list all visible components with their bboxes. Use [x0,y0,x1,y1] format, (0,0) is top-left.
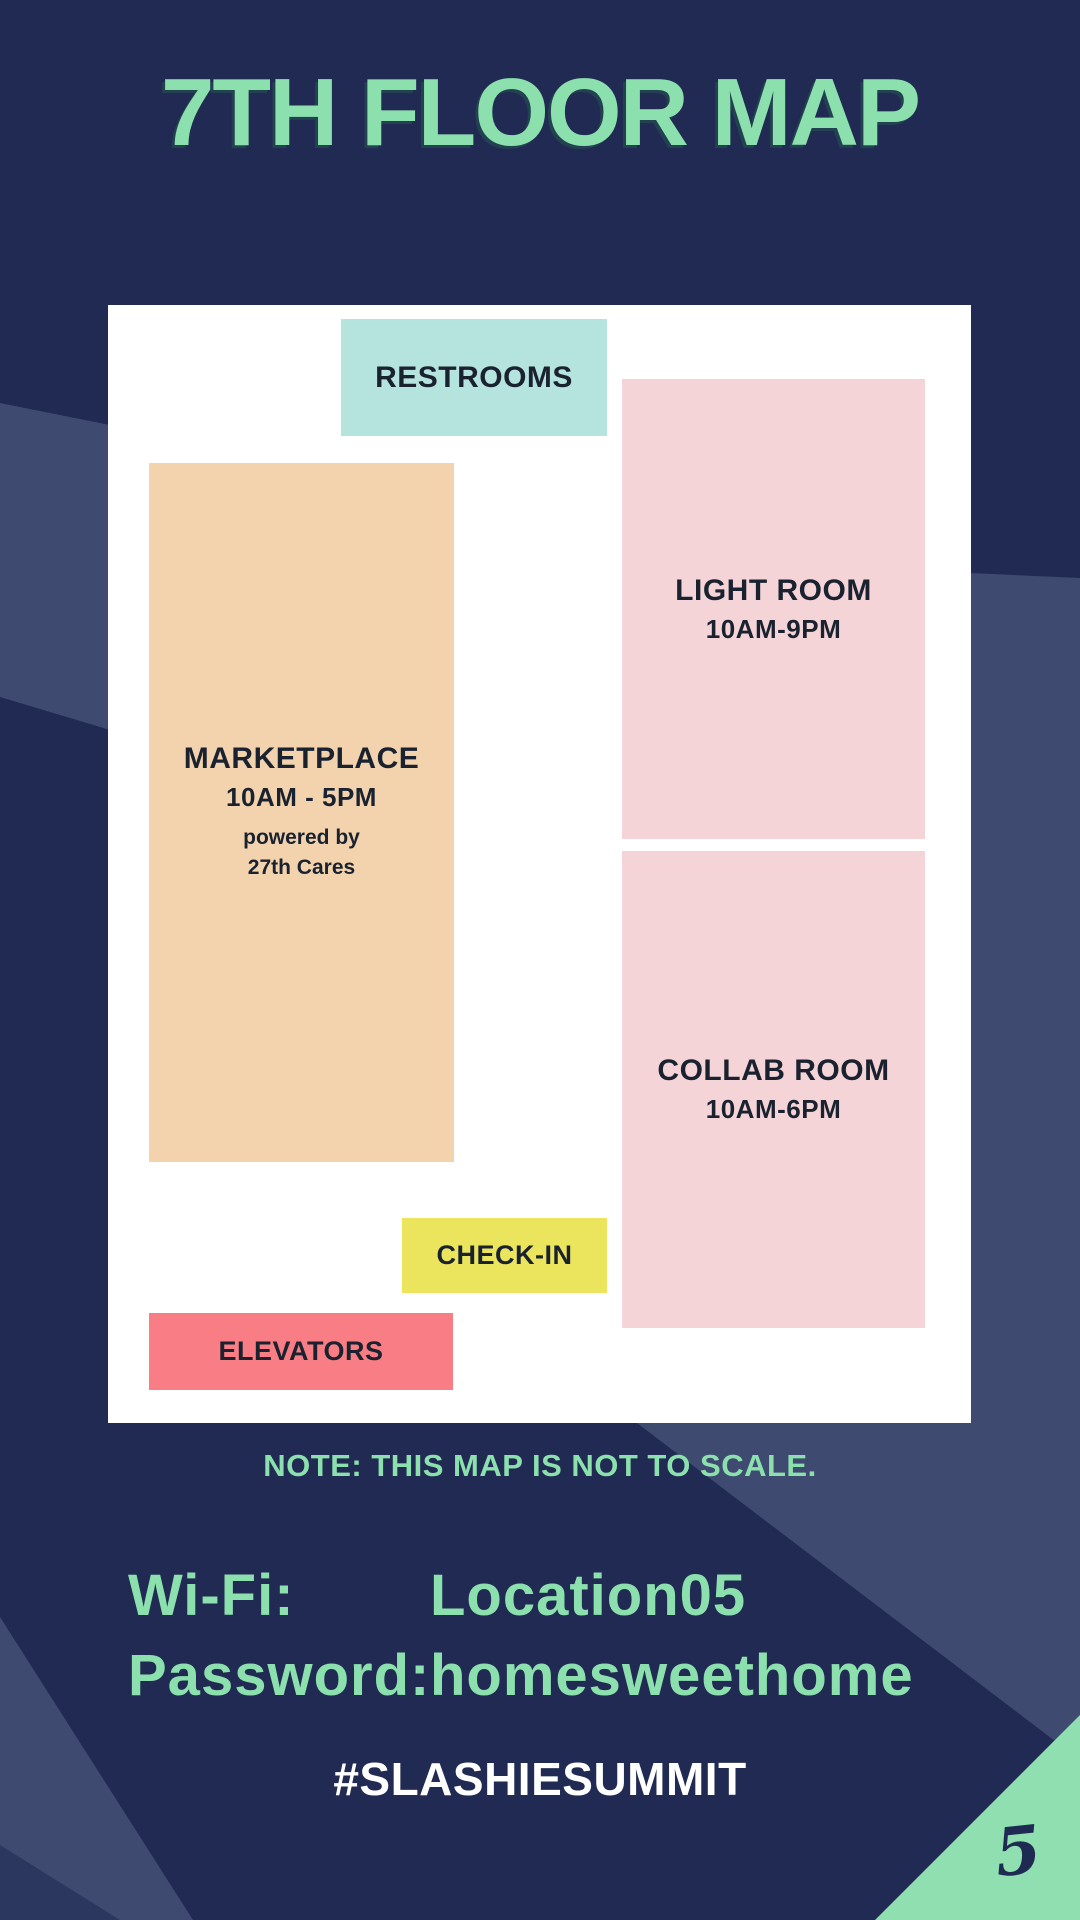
page-title: 7TH FLOOR MAP [0,58,1080,168]
room-marketplace-label: MARKETPLACE [184,742,420,776]
event-hashtag: #SLASHIESUMMIT [0,1752,1080,1806]
room-marketplace-sponsor-line1: powered by [243,823,360,853]
floor-map: RESTROOMS LIGHT ROOM 10AM-9PM MARKETPLAC… [108,305,971,1423]
room-elevators-label: ELEVATORS [218,1336,383,1367]
room-elevators: ELEVATORS [149,1313,453,1390]
room-light-room-label: LIGHT ROOM [675,574,872,608]
wifi-network-row: Wi-Fi: Location05 [128,1556,914,1636]
scale-note: NOTE: THIS MAP IS NOT TO SCALE. [0,1448,1080,1484]
room-marketplace-hours: 10AM - 5PM [226,782,377,813]
wifi-network-label: Wi-Fi: [128,1556,430,1636]
room-restrooms: RESTROOMS [341,319,607,436]
room-collab-room-label: COLLAB ROOM [657,1054,889,1088]
wifi-info: Wi-Fi: Location05 Password: homesweethom… [128,1556,914,1716]
page-number: 5 [991,1810,1045,1892]
room-collab-room-hours: 10AM-6PM [706,1094,841,1125]
wifi-password-row: Password: homesweethome [128,1636,914,1716]
room-check-in: CHECK-IN [402,1218,607,1293]
wifi-password-label: Password: [128,1636,430,1716]
room-restrooms-label: RESTROOMS [375,361,573,395]
wifi-network-value: Location05 [430,1556,746,1636]
room-collab-room: COLLAB ROOM 10AM-6PM [622,851,925,1328]
room-marketplace: MARKETPLACE 10AM - 5PM powered by 27th C… [149,463,454,1162]
room-marketplace-sponsor: powered by 27th Cares [243,823,360,884]
room-marketplace-sponsor-line2: 27th Cares [243,853,360,883]
room-check-in-label: CHECK-IN [437,1240,573,1271]
room-light-room: LIGHT ROOM 10AM-9PM [622,379,925,839]
wifi-password-value: homesweethome [430,1636,914,1716]
room-light-room-hours: 10AM-9PM [706,614,841,645]
floor-map-poster: 7TH FLOOR MAP RESTROOMS LIGHT ROOM 10AM-… [0,0,1080,1920]
